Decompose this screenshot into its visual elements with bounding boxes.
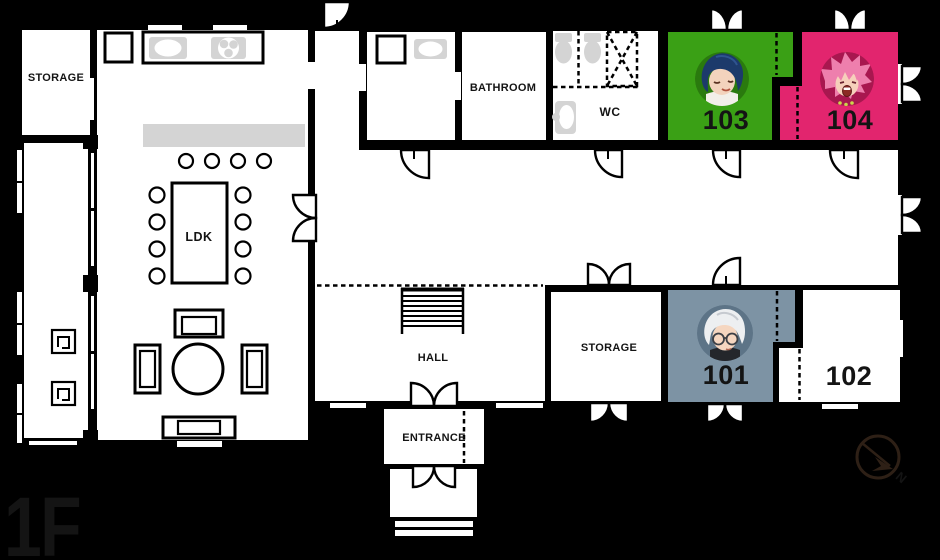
chair-icon — [236, 188, 251, 203]
eye — [840, 82, 844, 83]
refrigerator-icon — [105, 33, 132, 62]
kitchen-window-icon — [148, 25, 182, 31]
pillar-icon — [83, 275, 98, 292]
room-102-number: 102 — [826, 361, 873, 391]
room-103-number: 103 — [703, 105, 750, 135]
eye — [852, 82, 856, 83]
bar-stool-icon — [231, 154, 245, 168]
hall-window-icon — [330, 403, 366, 408]
north-corridor-floor — [315, 31, 359, 152]
wc-label: WC — [600, 105, 621, 119]
open-mouth — [843, 86, 852, 97]
room-104-number: 104 — [827, 105, 874, 135]
ldk-corridor-sliding-door-icon — [308, 62, 315, 89]
veranda-window-icon — [17, 384, 22, 413]
veranda-window-icon — [17, 292, 22, 323]
room-102-side-window-icon — [898, 320, 903, 357]
chair-icon — [236, 242, 251, 257]
veranda-bottom-window-icon — [29, 441, 77, 445]
ldk-step-icon — [177, 441, 222, 447]
laundry-sliding-door-icon — [359, 64, 366, 91]
chair-icon — [150, 188, 165, 203]
eye — [714, 82, 720, 83]
room-104-avatar[interactable] — [820, 52, 874, 106]
veranda-window-icon — [17, 325, 22, 355]
chair-icon — [150, 215, 165, 230]
floor-label: 1F — [4, 480, 80, 560]
bathroom-sliding-door-icon — [454, 72, 461, 100]
chair-icon — [150, 242, 165, 257]
floor-stool-icon — [52, 330, 75, 353]
kitchen-window-2-icon — [213, 25, 247, 31]
porch-floor — [390, 469, 477, 517]
entrance-step-1 — [395, 521, 473, 527]
bathroom-label: BATHROOM — [470, 82, 536, 94]
bar-stool-icon — [205, 154, 219, 168]
room-101-avatar[interactable] — [697, 305, 753, 361]
veranda-window-icon — [17, 183, 22, 213]
hall-window-2-icon — [496, 403, 543, 408]
veranda-window-icon — [17, 415, 22, 443]
bar-stool-icon — [257, 154, 271, 168]
hall-label: HALL — [418, 352, 449, 364]
storage-center-label: STORAGE — [581, 342, 637, 354]
entrance-step-2 — [395, 530, 473, 536]
room-102-bottom-window-icon — [822, 404, 858, 409]
washing-machine-icon — [377, 36, 405, 63]
eye — [728, 81, 733, 82]
entrance-label: ENTRANCE — [402, 432, 466, 444]
ldk-label: LDK — [185, 230, 212, 244]
chair-icon — [150, 269, 165, 284]
teeth — [844, 88, 851, 91]
round-table-icon — [173, 344, 223, 394]
chair-icon — [236, 215, 251, 230]
floor-plan-1f: STORAGE LDK BATHROOM WC HALL STORAGE ENT… — [0, 0, 940, 560]
pillar-icon — [83, 135, 98, 149]
hall-floor — [315, 285, 545, 401]
veranda-window-icon — [17, 150, 22, 181]
kitchen-bar-icon — [143, 124, 305, 147]
chair-icon — [236, 269, 251, 284]
floor-stool-icon — [52, 382, 75, 405]
storage-sliding-door-icon — [87, 78, 94, 120]
storage-top-left-label: STORAGE — [28, 72, 84, 84]
pillar-icon — [83, 430, 98, 444]
bar-stool-icon — [179, 154, 193, 168]
room-101-number: 101 — [703, 360, 750, 390]
